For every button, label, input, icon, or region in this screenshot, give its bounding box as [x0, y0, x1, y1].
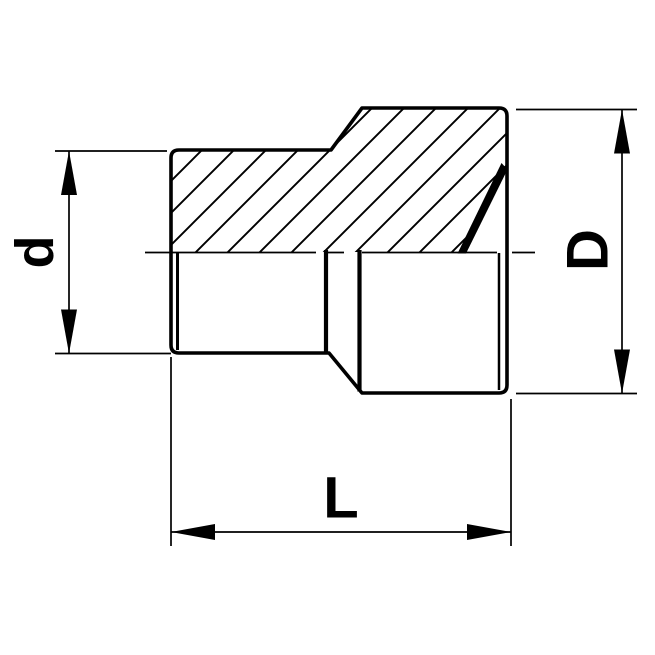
dimension-L-arrow-left	[171, 524, 215, 540]
technical-drawing-canvas: d D L	[0, 0, 655, 655]
dimension-D-arrow-up	[614, 110, 630, 154]
dimension-d-arrow-up	[61, 151, 77, 195]
drawing-svg: d D L	[0, 0, 655, 655]
dimension-D-label: D	[556, 229, 621, 271]
dimension-L-arrow-right	[467, 524, 511, 540]
dimension-D-arrow-down	[614, 350, 630, 394]
dimension-d-arrow-down	[61, 310, 77, 354]
section-hatching	[171, 108, 507, 252]
dimension-L-label: L	[323, 466, 358, 531]
dimension-d-label: d	[5, 236, 65, 269]
